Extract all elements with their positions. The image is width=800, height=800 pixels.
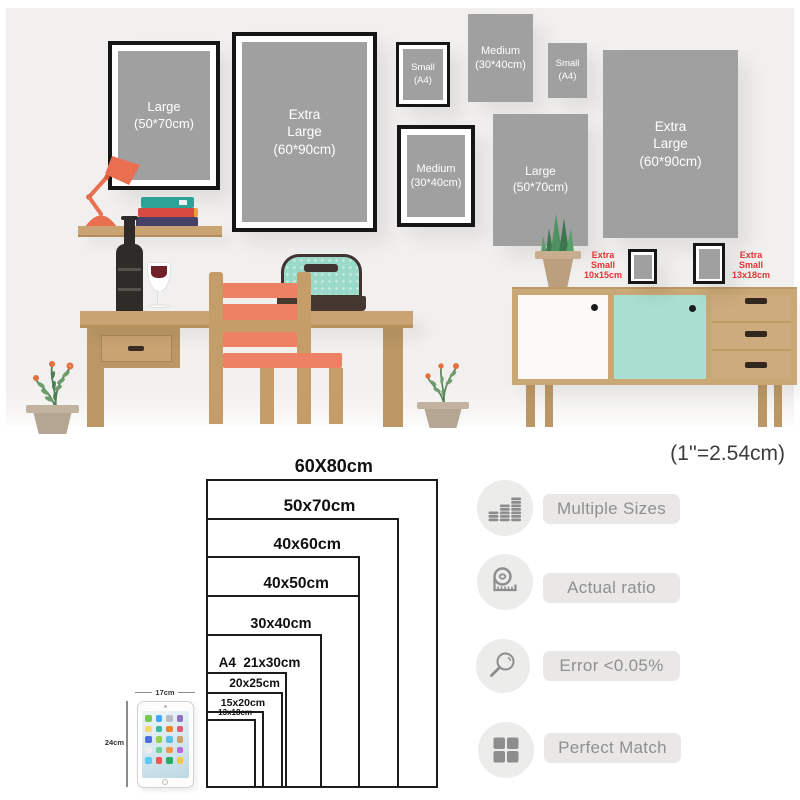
chair-front-leg <box>329 368 343 424</box>
wall-frame-small-a4: Small (A4) <box>396 42 450 107</box>
chair-back-post-left <box>209 272 223 424</box>
chair-front-leg <box>260 368 274 424</box>
sideboard-drawer <box>712 295 791 323</box>
feature-label: Multiple Sizes <box>557 499 666 519</box>
size-label: 20x25cm <box>229 676 280 690</box>
tablet-camera-dot <box>164 705 167 708</box>
wall-print-small-a4: Small (A4) <box>548 43 587 98</box>
magnifier-icon <box>485 648 521 684</box>
potted-plant-illustration <box>24 330 84 410</box>
drawer-handle <box>745 362 767 368</box>
cactus-plant-illustration <box>540 206 576 252</box>
sideboard-drawer <box>712 323 791 351</box>
app-icon-tile <box>145 757 152 764</box>
feature-badge: Actual ratio <box>543 573 680 603</box>
plant-pot-rim <box>417 402 469 409</box>
size-label: 50x70cm <box>284 496 356 516</box>
tablet-width-label: 17cm <box>155 688 174 697</box>
frame-size-label: Large (50*70cm) <box>513 164 568 195</box>
feature-badge: Error <0.05% <box>543 651 680 681</box>
extra-small-size-label: Extra Small 13x18cm <box>727 251 775 281</box>
app-icon-tile <box>156 747 163 754</box>
drawer-keyhole <box>128 346 144 351</box>
door-knob <box>591 304 598 311</box>
drawer-handle <box>745 298 767 304</box>
desk-drawer-unit <box>87 328 180 368</box>
feature-icon-circle <box>477 554 533 610</box>
wall-frame-xlarge-60x90: Extra Large (60*90cm) <box>232 32 377 232</box>
tablet-home-button <box>162 779 168 785</box>
tablet-width-dimension: 17cm <box>135 688 195 697</box>
frame-mat: Small (A4) <box>399 45 447 104</box>
tablet-screen <box>142 711 189 778</box>
app-icon-tile <box>156 715 163 722</box>
app-icon-tile <box>145 715 152 722</box>
desk-leg-right <box>383 328 403 427</box>
frame-size-label: Extra Large (60*90cm) <box>639 118 701 171</box>
frame-mat <box>631 252 654 281</box>
app-icon-tile <box>166 736 173 743</box>
frame-size-label: Large (50*70cm) <box>134 99 194 133</box>
app-icon-tile <box>177 726 184 733</box>
frame-size-label: Medium (30*40cm) <box>475 44 526 73</box>
satchel-bag-handle-slot <box>304 264 338 272</box>
frame-sizes-infographic: Large (50*70cm) Extra Large (60*90cm) Sm… <box>0 0 800 800</box>
wine-glass-stem <box>157 291 161 305</box>
wine-glass-wine <box>151 266 167 278</box>
size-label: 13x18cm <box>218 708 252 717</box>
grid-icon <box>488 732 524 768</box>
sideboard-leg <box>526 385 535 427</box>
bottle-band <box>118 268 141 271</box>
chair-crossbar <box>223 320 297 332</box>
size-label: 40x50cm <box>263 575 329 593</box>
unit-conversion-note: (1''=2.54cm) <box>545 442 785 466</box>
size-rect-13x18cm <box>206 719 256 788</box>
sideboard-body <box>512 287 797 385</box>
chair-back-post-right <box>297 272 311 424</box>
app-icon-tile <box>156 757 163 764</box>
bottle-band <box>118 288 141 291</box>
frame-mat: Extra Large (60*90cm) <box>236 36 373 228</box>
potted-plant-illustration <box>420 336 468 406</box>
app-icon-tile <box>177 757 184 764</box>
feature-badge: Perfect Match <box>544 733 681 763</box>
frame-size-label: Small (A4) <box>411 62 435 87</box>
frame-mat: Medium (30*40cm) <box>401 129 471 223</box>
app-icon-tile <box>156 736 163 743</box>
chair-slat <box>223 283 297 298</box>
app-icon-tile <box>166 726 173 733</box>
size-label: 60X80cm <box>295 456 373 477</box>
cactus-pot-rim <box>535 251 581 259</box>
feature-label: Actual ratio <box>567 578 656 598</box>
chair-slat <box>223 332 297 347</box>
sideboard-leg <box>758 385 767 427</box>
tabletop-frame-10x15 <box>628 249 657 284</box>
plant-pot <box>31 413 74 434</box>
sideboard-drawer <box>712 351 791 379</box>
app-icon-tile <box>177 736 184 743</box>
wall-print-xlarge-60x90: Extra Large (60*90cm) <box>603 50 738 238</box>
frame-size-label: Small (A4) <box>556 58 580 83</box>
tabletop-frame-13x18 <box>693 243 725 284</box>
extra-small-size-label: Extra Small 10x15cm <box>580 251 626 281</box>
app-icon-tile <box>156 726 163 733</box>
chair-seat <box>223 353 342 368</box>
app-icon-tile <box>145 736 152 743</box>
sideboard-leg <box>545 385 553 427</box>
sideboard-leg <box>774 385 782 427</box>
door-knob <box>689 305 696 312</box>
tablet-height-label: 24cm <box>104 738 124 747</box>
plant-pot-rim <box>26 405 79 413</box>
coins-icon <box>487 490 523 526</box>
app-icon-tile <box>166 747 173 754</box>
tape-measure-icon <box>487 564 523 600</box>
feature-icon-circle <box>477 480 533 536</box>
feature-badge: Multiple Sizes <box>543 494 680 524</box>
tablet-height-dimension-line <box>126 701 128 787</box>
wine-bottle-neck <box>124 218 135 246</box>
book-label <box>179 200 187 205</box>
size-label: 30x40cm <box>250 616 311 632</box>
nested-size-chart: 60X80cm50x70cm40x60cm40x50cm30x40cmA4 21… <box>206 450 448 788</box>
frame-size-label: Medium (30*40cm) <box>411 162 462 191</box>
feature-icon-circle <box>478 722 534 778</box>
wine-glass-foot <box>148 304 170 308</box>
chair-slat <box>223 304 297 320</box>
wall-print-medium-30x40: Medium (30*40cm) <box>468 14 533 102</box>
app-icon-tile <box>145 726 152 733</box>
sideboard-door-white <box>518 295 608 379</box>
size-label: A4 21x30cm <box>219 655 301 670</box>
feature-icon-circle <box>476 639 530 693</box>
size-label: 40x60cm <box>273 536 341 554</box>
wine-bottle-body <box>116 244 143 311</box>
drawer-handle <box>745 331 767 337</box>
wall-shelf <box>78 226 222 237</box>
app-icon-tile <box>177 747 184 754</box>
sideboard-door-mint <box>614 295 706 379</box>
app-icon-tile <box>166 757 173 764</box>
feature-label: Perfect Match <box>558 738 667 758</box>
feature-label: Error <0.05% <box>559 656 663 676</box>
frame-size-label: Extra Large (60*90cm) <box>273 106 335 159</box>
wall-frame-medium-30x40: Medium (30*40cm) <box>397 125 475 227</box>
app-icon-tile <box>145 747 152 754</box>
frame-mat <box>696 246 722 281</box>
book-red <box>138 208 198 217</box>
app-icon-tile <box>166 715 173 722</box>
book-teal <box>141 197 194 208</box>
app-icon-tile <box>177 715 184 722</box>
